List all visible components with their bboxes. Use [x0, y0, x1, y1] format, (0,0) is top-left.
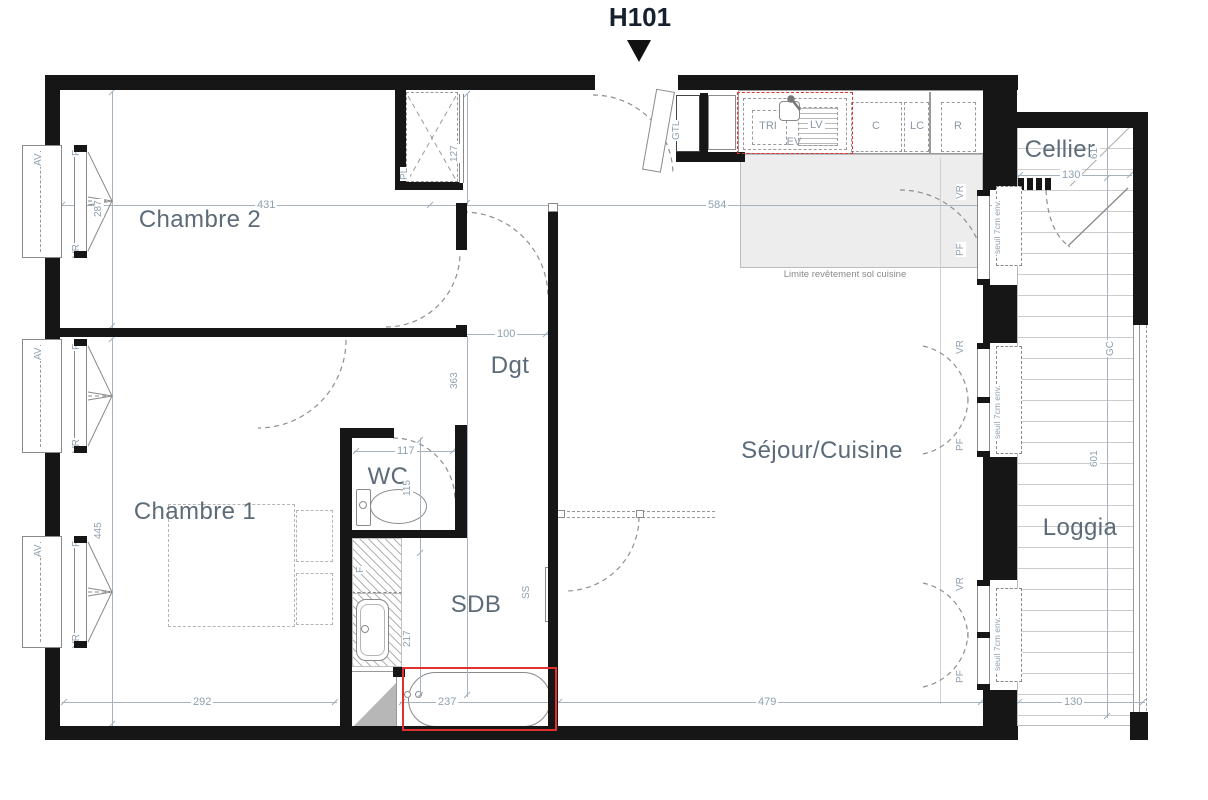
- kitchen-door-arc: [900, 190, 985, 275]
- kitchen-floor-note: Limite revêtement sol cuisine: [745, 269, 945, 280]
- threshold-note: seuil 7cm env.: [992, 199, 1002, 255]
- dim-label: 287: [94, 199, 104, 218]
- kitchen-red-outline: [737, 92, 853, 154]
- dim-label: 127: [450, 144, 460, 163]
- dim-label: 217: [403, 629, 413, 648]
- window-cap: [74, 536, 87, 543]
- gtl-label: GTL: [672, 120, 682, 141]
- wall-cellier-top: [1017, 112, 1148, 128]
- dim-label: 117: [395, 445, 417, 457]
- door-cap: [977, 343, 990, 349]
- closet-front: [459, 94, 464, 183]
- towel-radiator-label: SS: [522, 585, 532, 600]
- dgt-door-jamb: [548, 203, 558, 212]
- cellier-jamb-tooth: [1045, 178, 1051, 190]
- threshold-note: seuil 7cm env.: [992, 384, 1002, 440]
- wall-gtl: [700, 93, 708, 157]
- closet-label: PL: [400, 167, 410, 181]
- guardrail-label: GC: [1106, 340, 1116, 357]
- cellier-door-leaf: [1068, 188, 1128, 246]
- dim-label: 479: [756, 696, 778, 708]
- chambre2-door-arc: [386, 253, 460, 327]
- dim-label: 130: [1062, 696, 1084, 708]
- window-cap: [74, 251, 87, 258]
- chambre1-door-arc: [258, 340, 346, 428]
- threshold-note: seuil 7cm env.: [992, 616, 1002, 672]
- room-label-chambre1: Chambre 1: [100, 498, 290, 526]
- wall-dgt-sejour: [548, 210, 558, 726]
- partition-jamb: [636, 510, 644, 518]
- dim-label: 445: [94, 521, 104, 540]
- door-cap: [977, 190, 990, 196]
- window-cap: [74, 145, 87, 152]
- wall-left-3: [45, 453, 60, 536]
- room-label-sdb: SDB: [426, 591, 526, 619]
- door-vr-label: VR: [956, 184, 966, 200]
- window-cap: [74, 446, 87, 453]
- window-frame: [74, 536, 87, 648]
- door-pf-label: PF: [956, 437, 966, 452]
- hall-dgt-door-arc: [463, 212, 548, 297]
- wall-right-1: [983, 90, 1017, 190]
- window-av-label: AV: [34, 346, 44, 361]
- cellier-jamb-tooth: [1036, 178, 1042, 190]
- door-cap: [977, 451, 990, 457]
- entrance-marker-icon: [627, 40, 651, 62]
- room-label-sejour: Séjour/Cuisine: [702, 437, 942, 465]
- wall-right-2: [983, 285, 1017, 343]
- wall-chambre2-jamb: [456, 325, 467, 337]
- door-cap: [977, 279, 990, 285]
- wall-closet-bottom: [395, 182, 463, 190]
- door-frame-kitchen: [977, 190, 990, 285]
- room-label-loggia: Loggia: [1022, 514, 1138, 542]
- door-cap: [977, 580, 990, 586]
- wall-wc-right: [455, 425, 467, 538]
- cellier-door-arc: [1046, 190, 1070, 247]
- door-cap: [977, 684, 990, 690]
- wall-chambre2-right: [456, 203, 467, 250]
- floor-plan: H101 AV F VR AV F V: [0, 0, 1208, 800]
- dim-label: 130: [1060, 169, 1082, 181]
- wall-wc-top: [352, 428, 394, 438]
- wall-right-3: [983, 457, 1017, 580]
- duct-wedge: [353, 683, 396, 727]
- room-label-cellier: Cellier: [1002, 136, 1118, 164]
- wall-chambre1-right: [340, 428, 352, 726]
- wall-left-1: [45, 75, 60, 145]
- wall-top-right: [678, 75, 1018, 90]
- washer-label: LC: [906, 120, 928, 132]
- door-pf-label: PF: [956, 669, 966, 684]
- cooker-label: C: [865, 120, 887, 132]
- closet-cross: [408, 96, 456, 180]
- dim-label: 601: [1090, 449, 1100, 468]
- window-av-label: AV: [34, 152, 44, 167]
- plan-title: H101: [560, 2, 720, 33]
- window-cap: [74, 339, 87, 346]
- wall-top-left: [45, 75, 595, 90]
- room-label-chambre2: Chambre 2: [105, 206, 295, 234]
- dim-label: 61: [1090, 147, 1100, 160]
- bathtub-red-outline: [402, 667, 557, 731]
- shaft-label: F: [356, 566, 366, 574]
- door-cap: [977, 397, 990, 403]
- window-av-label: AV: [34, 543, 44, 558]
- wall-right-4: [983, 690, 1017, 740]
- door-vr-label: VR: [956, 339, 966, 355]
- wall-chambre-divider: [60, 328, 467, 337]
- dim-label: 115: [403, 479, 413, 497]
- window-cap: [74, 641, 87, 648]
- fridge-label: R: [948, 120, 968, 132]
- partition-jamb: [557, 510, 565, 518]
- wall-cellier-right: [1133, 128, 1148, 325]
- door-pf-label: PF: [956, 242, 966, 257]
- wall-gtl-bottom: [676, 152, 745, 162]
- wall-loggia-corner: [1130, 712, 1148, 740]
- dim-label: 100: [495, 328, 517, 340]
- room-label-dgt: Dgt: [475, 352, 545, 380]
- duct-box: [708, 95, 736, 150]
- window-frame: [74, 145, 87, 258]
- wall-left-2: [45, 258, 60, 339]
- door-vr-label: VR: [956, 576, 966, 592]
- window-frame: [74, 339, 87, 453]
- dim-label: 292: [191, 696, 213, 708]
- partition-door-arc: [565, 517, 639, 591]
- wall-wc-bottom: [352, 530, 467, 538]
- dim-label: 584: [706, 199, 728, 211]
- dim-label: 363: [450, 371, 460, 390]
- door-cap: [977, 632, 990, 638]
- cellier-jamb-tooth: [1027, 178, 1033, 190]
